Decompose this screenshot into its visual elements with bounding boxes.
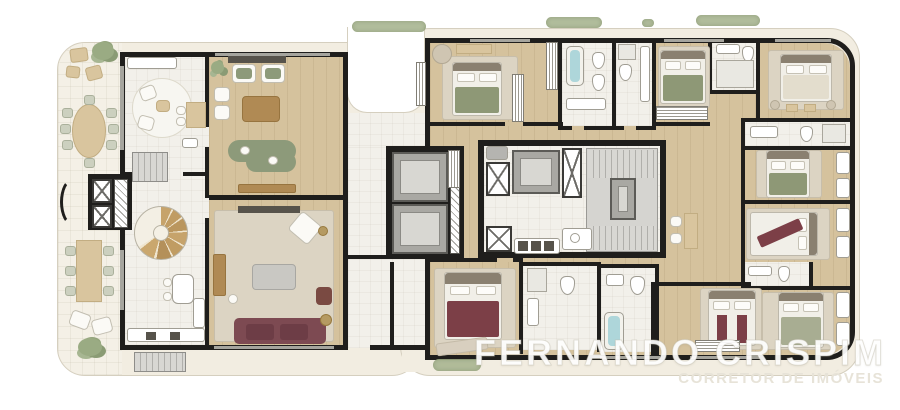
- hb: [779, 293, 823, 301]
- closet: [836, 236, 850, 258]
- w: [558, 38, 562, 126]
- plant: [92, 42, 114, 60]
- chair: [163, 292, 172, 301]
- element: [400, 212, 440, 246]
- bk: [783, 75, 829, 99]
- spiral-staircase: [134, 206, 188, 260]
- desk: [186, 102, 206, 128]
- fire-elevator: [610, 178, 636, 220]
- duct-shaft: [486, 226, 512, 252]
- bench: [238, 184, 296, 193]
- p: [783, 303, 799, 312]
- elevator: [392, 204, 448, 254]
- shower: [716, 60, 754, 88]
- duct-shaft: [562, 148, 582, 198]
- closet: [836, 152, 850, 174]
- w: [809, 262, 813, 288]
- win: [470, 39, 530, 42]
- seat: [246, 324, 274, 340]
- p: [771, 161, 786, 170]
- armchair: [214, 105, 230, 120]
- elevator: [392, 152, 448, 202]
- element: [400, 160, 440, 194]
- win: [775, 39, 831, 42]
- private-elevator-shaft: [92, 205, 112, 228]
- hb: [453, 63, 501, 71]
- entry-door-arc: [60, 178, 86, 226]
- p: [450, 286, 470, 295]
- tv-console: [238, 206, 300, 213]
- chair: [84, 95, 95, 105]
- shower: [822, 124, 846, 143]
- p: [809, 65, 827, 74]
- desk-chair: [176, 106, 186, 115]
- w: [652, 122, 710, 126]
- chair: [103, 266, 114, 276]
- shower: [618, 44, 636, 60]
- desk: [684, 213, 698, 249]
- p: [665, 61, 681, 70]
- p: [685, 61, 701, 70]
- bed: [750, 212, 818, 256]
- pouf: [228, 294, 238, 304]
- element: [570, 50, 580, 82]
- dark: [170, 332, 180, 340]
- p: [713, 301, 730, 310]
- service-rooms-floor: [348, 258, 426, 348]
- dining-table: [76, 240, 102, 302]
- sideboard: [213, 254, 226, 296]
- stool: [786, 104, 798, 112]
- oval-dining-table: [72, 104, 106, 158]
- chair: [84, 158, 95, 168]
- runner: [757, 218, 804, 248]
- vanity: [750, 126, 778, 138]
- chair: [103, 286, 114, 296]
- hb: [709, 291, 755, 299]
- w: [741, 118, 745, 290]
- vanity: [527, 298, 539, 326]
- foyer-floor: [348, 113, 425, 146]
- shower: [527, 268, 547, 292]
- bk: [769, 173, 807, 195]
- element: [520, 158, 552, 186]
- p: [798, 236, 807, 250]
- service-elevator: [512, 150, 560, 194]
- console: [228, 56, 286, 63]
- hb: [781, 55, 831, 63]
- plant: [78, 338, 102, 356]
- chair: [163, 278, 172, 287]
- chair: [103, 246, 114, 256]
- win: [120, 250, 124, 310]
- lower-stair: [134, 352, 186, 372]
- wood: [624, 126, 636, 130]
- armchair: [316, 287, 332, 305]
- vanity: [566, 98, 606, 110]
- dark: [146, 332, 156, 340]
- bathtub: [566, 46, 584, 86]
- w: [205, 147, 209, 198]
- w: [425, 122, 563, 126]
- closet: [836, 178, 850, 198]
- bk: [663, 75, 703, 101]
- wood: [572, 126, 584, 130]
- chair: [106, 108, 117, 118]
- terrace-table: [69, 47, 89, 63]
- coffee-table: [252, 264, 296, 290]
- w: [209, 195, 343, 200]
- chair: [62, 108, 73, 118]
- pouf: [826, 100, 836, 110]
- w: [205, 218, 209, 345]
- private-elevator-shaft: [92, 179, 112, 203]
- side-table: [156, 100, 170, 112]
- chair-cushion: [236, 68, 252, 79]
- w: [601, 264, 659, 268]
- desk-chair: [670, 233, 682, 244]
- closet: [416, 62, 426, 106]
- chair: [60, 124, 71, 134]
- counter: [127, 57, 177, 69]
- hb: [445, 273, 501, 284]
- chair: [65, 266, 76, 276]
- watermark-subtitle: CORRETOR DE IMÓVEIS: [678, 370, 884, 387]
- w: [741, 118, 853, 122]
- wardrobe: [656, 106, 708, 120]
- round-chair: [432, 44, 452, 64]
- desk-chair: [176, 117, 186, 126]
- terrace-table: [65, 65, 80, 78]
- element: [153, 225, 170, 242]
- lobby-strip-floor: [348, 146, 386, 258]
- p: [786, 65, 804, 74]
- chair: [65, 246, 76, 256]
- duct: [486, 146, 508, 160]
- service-stair: [132, 152, 168, 182]
- bk: [455, 87, 499, 113]
- bed: [660, 50, 706, 104]
- cushion: [268, 156, 278, 165]
- side-table: [318, 226, 328, 236]
- kitchen-table: [172, 274, 194, 304]
- vanity: [716, 44, 740, 54]
- dresser: [456, 44, 492, 54]
- win: [214, 346, 334, 349]
- seat: [280, 324, 308, 340]
- chair: [106, 140, 117, 150]
- hedge: [546, 17, 602, 28]
- w: [651, 282, 751, 286]
- treadsh: [588, 226, 656, 250]
- desk-chair: [670, 216, 682, 227]
- dark: [544, 241, 554, 251]
- side-table: [320, 314, 332, 326]
- w: [390, 262, 394, 348]
- floor-plan: FERNANDO CRISPIM CORRETOR DE IMÓVEIS: [0, 0, 900, 410]
- p: [479, 73, 497, 82]
- hedge: [352, 21, 426, 32]
- chair: [65, 286, 76, 296]
- kitchen-counter: [127, 328, 205, 342]
- w: [756, 38, 760, 120]
- closet: [836, 208, 850, 232]
- plant: [211, 61, 224, 74]
- hedge: [696, 15, 760, 26]
- dark: [531, 241, 541, 251]
- watermark-name: FERNANDO CRISPIM: [474, 332, 886, 374]
- p: [803, 303, 819, 312]
- dark: [518, 241, 528, 251]
- p: [476, 286, 496, 295]
- vanity: [748, 266, 772, 276]
- bed: [444, 272, 502, 340]
- closet: [448, 150, 460, 188]
- win: [120, 66, 124, 150]
- coffee-table: [242, 96, 280, 122]
- wc: [570, 233, 580, 243]
- vanity: [182, 138, 198, 148]
- chair: [62, 140, 73, 150]
- facade-notch: [347, 27, 425, 113]
- p: [734, 301, 751, 310]
- p: [790, 161, 805, 170]
- hb: [661, 51, 705, 59]
- p: [457, 73, 475, 82]
- wardrobe: [546, 42, 558, 90]
- element: [618, 186, 628, 212]
- bed: [452, 62, 502, 116]
- stool: [804, 104, 816, 112]
- bed: [766, 150, 810, 198]
- w: [183, 172, 205, 176]
- w: [741, 200, 853, 204]
- w: [523, 262, 601, 266]
- bed: [780, 54, 832, 102]
- hedge: [642, 19, 654, 27]
- armchair: [214, 87, 230, 102]
- vanity: [640, 46, 650, 102]
- win: [664, 39, 724, 42]
- w: [370, 345, 430, 350]
- kitchen-counter: [193, 298, 205, 328]
- vanity: [606, 274, 624, 286]
- cushion: [240, 146, 250, 155]
- chair: [108, 124, 119, 134]
- closet: [836, 292, 850, 318]
- treadsh: [588, 150, 656, 178]
- duct-shaft: [486, 162, 510, 196]
- wood: [505, 122, 523, 126]
- duct-shaft: [114, 179, 128, 228]
- pouf: [770, 100, 780, 110]
- wood: [497, 258, 513, 262]
- w: [708, 90, 756, 94]
- chair-cushion: [265, 68, 281, 79]
- hb: [767, 151, 809, 159]
- w: [612, 40, 616, 126]
- hb: [809, 213, 817, 255]
- wardrobe: [512, 74, 524, 122]
